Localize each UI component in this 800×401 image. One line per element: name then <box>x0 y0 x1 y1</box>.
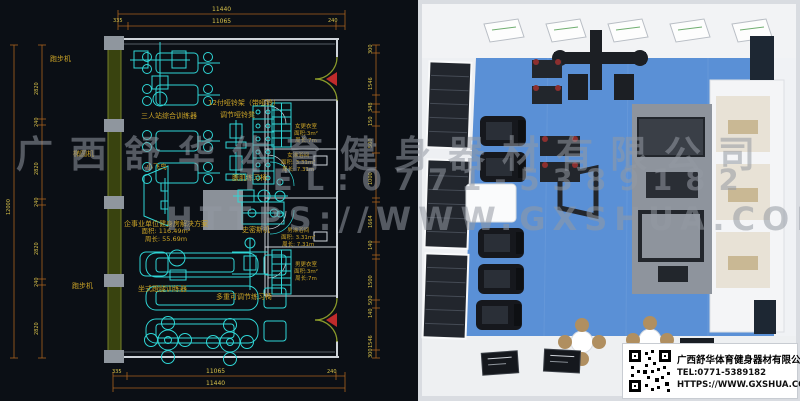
dim-right-seg: 1000 <box>368 172 374 185</box>
solution-perimeter: 周长: 55.69m <box>118 236 214 243</box>
dim-top-inner: 11065 <box>212 18 231 25</box>
room-men-locker: 男更衣室 面积:3m² 周长:7m <box>294 262 318 283</box>
dim-left-seg: 240 <box>34 117 40 127</box>
screenshot-root: 跑步机 椭圆机 跑步机 三人站综合训练器 12付哑铃架（带哑铃） 调节哑铃凳 小… <box>0 0 800 401</box>
dimension-lines <box>10 10 380 392</box>
window-blinds <box>423 61 472 338</box>
dim-top-right-offset: 240 <box>328 18 338 24</box>
smith-machine <box>242 202 284 224</box>
dim-right-seg: 150 <box>368 116 374 126</box>
pillar <box>466 184 516 222</box>
dim-bottom-left-offset: 335 <box>112 369 122 375</box>
label-treadmill-bottom: 跑步机 <box>72 282 93 290</box>
treadmill-bottom-3 <box>146 319 286 343</box>
dim-left-seg: 2820 <box>34 162 40 175</box>
qr-code <box>627 348 673 394</box>
label-leg-press: 坐式蹬腿训练器 <box>138 285 187 293</box>
dim-left-seg: 2820 <box>34 242 40 255</box>
three-person-station <box>130 42 190 106</box>
dim-bottom-right-offset: 240 <box>327 369 337 375</box>
room-men-shower: 男淋浴间 面积: 3.31m² 周长: 7.31m <box>281 228 315 249</box>
card-website: HTTPS://WWW.GXSHUA.COM <box>677 380 793 390</box>
dim-top-total: 11440 <box>212 6 231 13</box>
treadmill-top-row1 <box>143 53 221 74</box>
elliptical-row1 <box>143 131 221 152</box>
dumbbell-rack <box>253 106 274 184</box>
rack-mat-area <box>632 104 712 294</box>
dim-left-total: 12000 <box>6 199 12 215</box>
label-multi-bench: 多重可调节练习椅 <box>216 293 272 301</box>
dim-right-seg: 140 <box>368 240 374 250</box>
card-tel: TEL:0771-5389182 <box>677 368 793 378</box>
label-treadmill-top: 跑步机 <box>50 55 71 63</box>
dim-right-seg: 1546 <box>368 335 374 348</box>
dim-left-seg: 2820 <box>34 322 40 335</box>
door-bottom-right <box>754 300 776 334</box>
dim-left-seg: 240 <box>34 277 40 287</box>
lockers-men <box>272 250 291 294</box>
render-drawing <box>418 0 800 401</box>
render-3d-pane <box>418 0 800 401</box>
solution-note: 企事业单位健身房解决方案 面积: 116.49m² 周长: 55.69m <box>118 220 214 243</box>
label-dumbbell-rack: 12付哑铃架（带哑铃） <box>208 99 280 107</box>
entry-door-top <box>315 57 337 101</box>
entry-door-bottom <box>315 298 337 342</box>
dim-left-seg: 2820 <box>34 82 40 95</box>
dim-right-seg: 1664 <box>368 215 374 228</box>
dim-right-seg: 300 <box>368 44 374 54</box>
locker-block <box>710 80 784 332</box>
label-ab-bench: 腹肌练习椅 <box>232 174 267 182</box>
room-women-locker: 女更衣室 面积:3m² 周长:7m <box>294 124 318 145</box>
lockers-women <box>272 103 291 147</box>
label-three-person-station: 三人站综合训练器 <box>141 112 197 120</box>
dim-right-seg: 348 <box>368 102 374 112</box>
door-top-right <box>750 36 774 80</box>
label-elliptical: 椭圆机 <box>73 150 94 158</box>
rest-table-2 <box>207 319 254 366</box>
room-women-shower: 女淋浴间 面积: 3.31m² 周长: 7.31m <box>281 153 315 174</box>
multi-adjustable-bench <box>232 238 268 290</box>
dim-top-left-offset: 335 <box>113 18 123 24</box>
dim-right-seg: 300 <box>368 348 374 358</box>
label-adjustable-bench: 调节哑铃凳 <box>220 111 255 119</box>
dim-right-seg: 500 <box>368 295 374 305</box>
dim-right-seg: 140 <box>368 308 374 318</box>
dim-left-seg: 240 <box>34 197 40 207</box>
dim-right-seg: 1500 <box>368 275 374 288</box>
seated-leg-press <box>140 250 186 280</box>
cad-floorplan-pane: 跑步机 椭圆机 跑步机 三人站综合训练器 12付哑铃架（带哑铃） 调节哑铃凳 小… <box>0 0 418 401</box>
dim-right-seg: 1546 <box>368 77 374 90</box>
card-company-name: 广西舒华体育健身器材有限公司 <box>677 352 793 366</box>
company-info-card: 广西舒华体育健身器材有限公司 TEL:0771-5389182 HTTPS://… <box>622 343 798 399</box>
dim-bottom-inner: 11065 <box>206 368 225 375</box>
label-cable-crossover: 小飞鸟 <box>146 163 167 171</box>
dim-right-seg: 500 <box>368 138 374 148</box>
label-smith-machine: 史密斯机 <box>242 226 270 234</box>
dim-bottom-total: 11440 <box>206 380 225 387</box>
adjustable-dumbbell-bench <box>226 120 246 180</box>
